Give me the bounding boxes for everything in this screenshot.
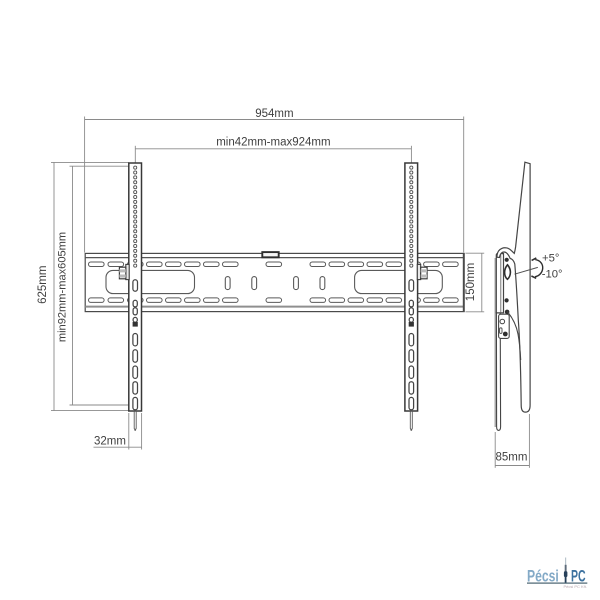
svg-text:32mm: 32mm [94,436,126,448]
svg-text:85mm: 85mm [496,452,528,464]
svg-text:-10°: -10° [542,269,563,281]
svg-text:min42mm-max924mm: min42mm-max924mm [216,137,330,149]
svg-text:625mm: 625mm [37,266,49,304]
svg-text:954mm: 954mm [255,108,293,120]
svg-text:min92mm-max605mm: min92mm-max605mm [56,232,68,342]
svg-text:150mm: 150mm [465,263,477,301]
svg-text:Pécsi PC Kft.: Pécsi PC Kft. [563,584,587,589]
svg-text:+5°: +5° [542,252,559,264]
